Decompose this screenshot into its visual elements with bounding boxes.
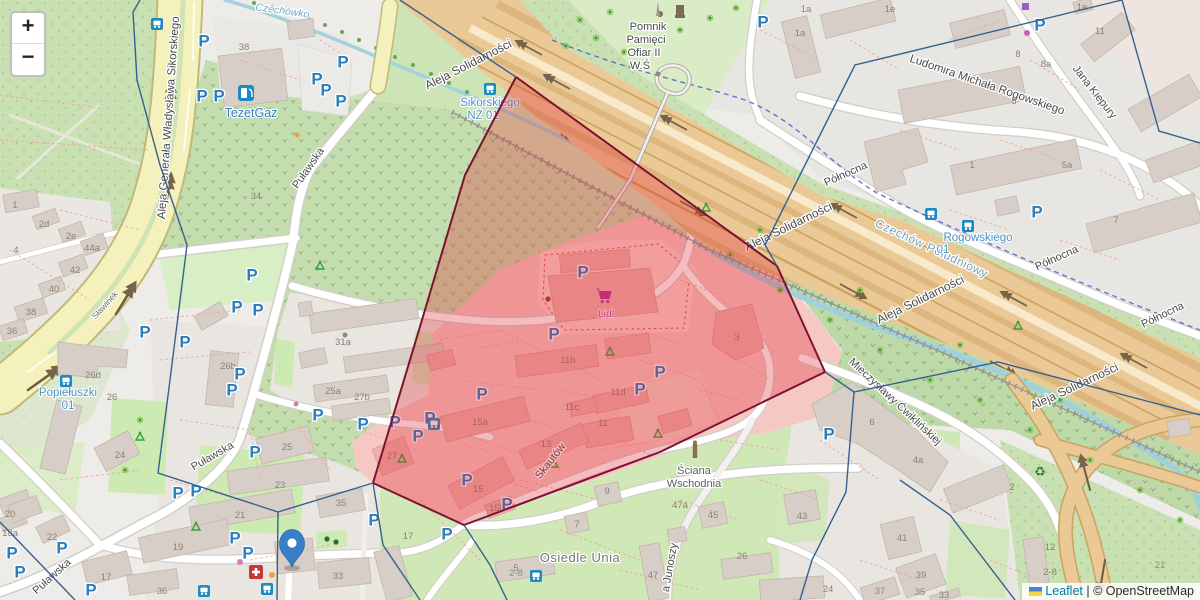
svg-text:5a: 5a	[1062, 160, 1073, 171]
svg-text:31a: 31a	[335, 337, 352, 348]
svg-text:34: 34	[251, 191, 262, 202]
svg-text:9: 9	[604, 486, 609, 497]
svg-text:42: 42	[70, 265, 81, 276]
svg-text:38: 38	[239, 42, 250, 53]
svg-text:47: 47	[648, 570, 659, 581]
svg-text:47a: 47a	[672, 500, 689, 511]
svg-text:26d: 26d	[85, 370, 101, 381]
svg-text:1: 1	[12, 200, 17, 211]
svg-text:41: 41	[897, 533, 908, 544]
svg-text:24: 24	[115, 450, 126, 461]
svg-text:8: 8	[1015, 49, 1020, 60]
svg-text:12: 12	[1045, 542, 1056, 553]
svg-text:24: 24	[823, 584, 834, 595]
svg-text:21: 21	[1155, 560, 1166, 571]
svg-text:4a: 4a	[913, 455, 924, 466]
svg-text:Pomnik: Pomnik	[630, 21, 667, 33]
svg-text:19: 19	[173, 542, 184, 553]
svg-text:1e: 1e	[885, 4, 896, 15]
svg-text:2e: 2e	[66, 231, 77, 242]
svg-text:36: 36	[157, 586, 168, 597]
svg-text:27b: 27b	[354, 392, 370, 403]
svg-text:25a: 25a	[325, 386, 342, 397]
svg-text:21: 21	[235, 510, 246, 521]
svg-text:23: 23	[275, 480, 286, 491]
svg-text:Ściana: Ściana	[677, 464, 712, 477]
svg-text:5: 5	[1011, 96, 1016, 107]
svg-text:♻: ♻	[1034, 464, 1046, 479]
svg-text:W.Ś: W.Ś	[630, 59, 650, 72]
svg-text:Popiełuszki: Popiełuszki	[39, 387, 97, 399]
svg-text:37: 37	[875, 586, 886, 597]
svg-text:11: 11	[1095, 26, 1105, 37]
svg-text:20: 20	[5, 509, 16, 520]
svg-text:17: 17	[101, 572, 112, 583]
svg-text:2-8: 2-8	[509, 568, 523, 579]
svg-text:1a: 1a	[795, 28, 806, 39]
svg-text:TezetGaz: TezetGaz	[225, 106, 278, 120]
svg-text:Ofiar II: Ofiar II	[627, 47, 660, 59]
svg-text:1a: 1a	[801, 4, 812, 15]
svg-text:7: 7	[1113, 215, 1118, 226]
svg-text:40: 40	[49, 284, 60, 295]
svg-text:26: 26	[737, 551, 748, 562]
svg-text:1: 1	[969, 160, 974, 171]
svg-text:35: 35	[336, 498, 347, 509]
svg-text:44a: 44a	[84, 243, 101, 254]
svg-text:Pamięci: Pamięci	[626, 34, 665, 46]
svg-text:01: 01	[937, 244, 950, 256]
svg-text:6: 6	[869, 417, 874, 428]
svg-text:26: 26	[107, 392, 118, 403]
svg-text:Rogowskiego: Rogowskiego	[943, 232, 1012, 244]
svg-text:Osiedle Unia: Osiedle Unia	[540, 550, 621, 565]
svg-text:2: 2	[1009, 482, 1014, 493]
svg-text:2-8: 2-8	[1043, 567, 1057, 578]
svg-text:39: 39	[916, 570, 927, 581]
svg-text:33: 33	[333, 571, 344, 582]
svg-text:01: 01	[62, 400, 75, 412]
svg-text:4: 4	[13, 245, 18, 256]
svg-text:45: 45	[708, 510, 719, 521]
svg-text:35: 35	[915, 587, 926, 598]
svg-text:25: 25	[282, 442, 293, 453]
svg-text:2d: 2d	[39, 219, 50, 230]
svg-text:38: 38	[26, 307, 37, 318]
svg-text:36: 36	[7, 326, 18, 337]
svg-text:8a: 8a	[1041, 59, 1052, 70]
svg-text:7: 7	[574, 519, 579, 530]
svg-text:17: 17	[403, 531, 414, 542]
svg-text:Wschodnia: Wschodnia	[667, 478, 722, 490]
svg-text:43: 43	[797, 511, 808, 522]
svg-text:33: 33	[939, 590, 950, 600]
